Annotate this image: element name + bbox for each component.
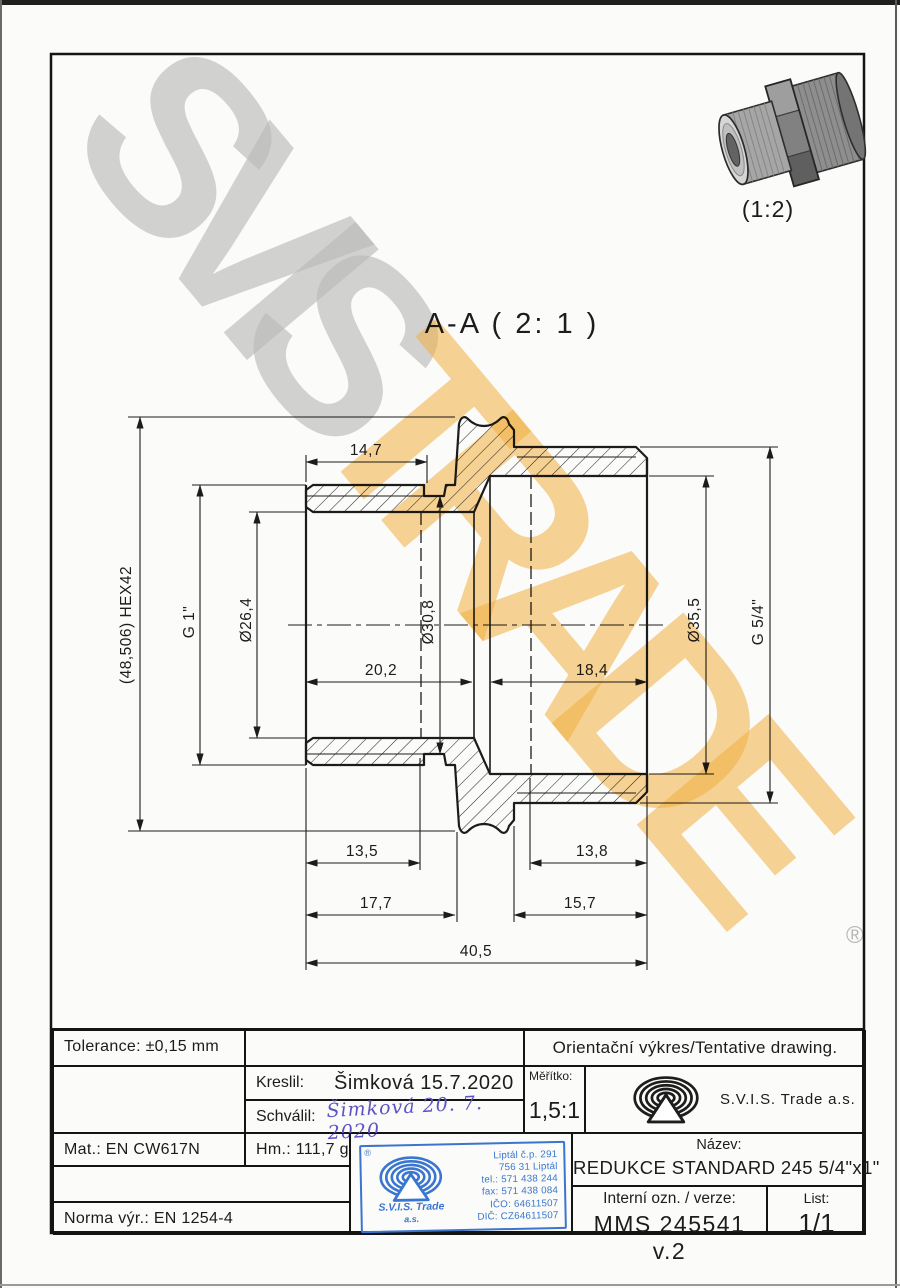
company-stamp: ® S.V.I.S. Tradea.s. Liptál č.p. 291 756… xyxy=(359,1141,567,1233)
meritko-value: 1,5:1 xyxy=(525,1097,584,1124)
stamp-logo-icon xyxy=(369,1155,452,1203)
stamp-cell: ® S.V.I.S. Tradea.s. Liptál č.p. 291 756… xyxy=(350,1133,572,1235)
dim-g54: G 5/4" xyxy=(750,599,767,645)
norm-cell: Norma výr.: EN 1254-4 xyxy=(53,1202,350,1235)
list-label: List: xyxy=(768,1190,865,1206)
dim-dia35-5: Ø35,5 xyxy=(686,598,703,643)
thumbnail-scale-label: (1:2) xyxy=(742,196,794,222)
dim-hex42: (48,506) HEX42 xyxy=(118,566,135,684)
nazev-value: REDUKCE STANDARD 245 5/4"x1" xyxy=(573,1157,865,1179)
nazev-cell: Název: REDUKCE STANDARD 245 5/4"x1" xyxy=(572,1133,866,1186)
stamp-line: fax: 571 438 084 xyxy=(477,1185,558,1199)
nazev-label: Název: xyxy=(573,1137,865,1153)
meritko-cell: Měřítko: 1,5:1 xyxy=(524,1066,585,1133)
list-value: 1/1 xyxy=(768,1208,865,1239)
tolerance-cell: Tolerance: ±0,15 mm xyxy=(53,1030,245,1066)
dim-40-5: 40,5 xyxy=(460,943,492,960)
list-cell: List: 1/1 xyxy=(767,1186,866,1235)
svis-logo-icon xyxy=(630,1076,702,1124)
drawing-sheet: (48,506) HEX42 G 1" Ø26,4 Ø30,8 Ø35,5 G … xyxy=(0,0,900,1288)
dim-dia26-4: Ø26,4 xyxy=(238,598,255,643)
mass-cell: Hm.: 111,7 g xyxy=(245,1133,350,1166)
dim-g1: G 1" xyxy=(181,606,198,639)
stamp-line: DIČ: CZ64611507 xyxy=(477,1210,558,1224)
dim-13-5: 13,5 xyxy=(346,843,378,860)
section-title: A-A ( 2: 1 ) xyxy=(425,308,600,340)
dim-dia30-8: Ø30,8 xyxy=(420,600,437,645)
stamp-company: S.V.I.S. Tradea.s. xyxy=(368,1201,454,1226)
title-block: Tolerance: ±0,15 mm Orientační výkres/Te… xyxy=(51,1028,864,1233)
orientation-note: Orientační výkres/Tentative drawing. xyxy=(553,1038,838,1058)
dim-18-4: 18,4 xyxy=(576,662,608,679)
empty-cell-row1 xyxy=(245,1030,524,1066)
dimension-labels: (48,506) HEX42 G 1" Ø26,4 Ø30,8 Ø35,5 G … xyxy=(118,442,767,960)
interni-label: Interní ozn. / verze: xyxy=(573,1190,766,1208)
dim-15-7: 15,7 xyxy=(564,895,596,912)
kreslil-label: Kreslil: xyxy=(256,1074,334,1092)
fitting-3d-render xyxy=(709,64,873,203)
dim-14-7: 14,7 xyxy=(350,442,382,459)
interni-cell: Interní ozn. / verze: MMS 245541 v.2 xyxy=(572,1186,767,1235)
empty-cell-row3 xyxy=(53,1166,350,1202)
section-upper-wall xyxy=(306,417,647,512)
section-lower-wall xyxy=(306,738,647,833)
orientation-note-cell: Orientační výkres/Tentative drawing. xyxy=(524,1030,866,1066)
stamp-company-suffix: a.s. xyxy=(404,1213,419,1223)
interni-value: MMS 245541 v.2 xyxy=(573,1211,766,1265)
company-name: S.V.I.S. Trade a.s. xyxy=(720,1091,856,1108)
schvalil-cell: Schválil: Šimková 20. 7. 2020 xyxy=(245,1100,524,1133)
company-logo-cell: S.V.I.S. Trade a.s. xyxy=(585,1066,866,1133)
stamp-company-name: S.V.I.S. Trade xyxy=(378,1200,444,1213)
stamp-address: Liptál č.p. 291 756 31 Liptál tel.: 571 … xyxy=(476,1149,559,1224)
dim-17-7: 17,7 xyxy=(360,895,392,912)
meritko-label: Měřítko: xyxy=(529,1069,572,1083)
dim-20-2: 20,2 xyxy=(365,662,397,679)
schvalil-label: Schválil: xyxy=(256,1108,327,1126)
empty-cell-row2 xyxy=(53,1066,245,1133)
material-cell: Mat.: EN CW617N xyxy=(53,1133,245,1166)
dim-13-8: 13,8 xyxy=(576,843,608,860)
section-view xyxy=(288,417,668,833)
